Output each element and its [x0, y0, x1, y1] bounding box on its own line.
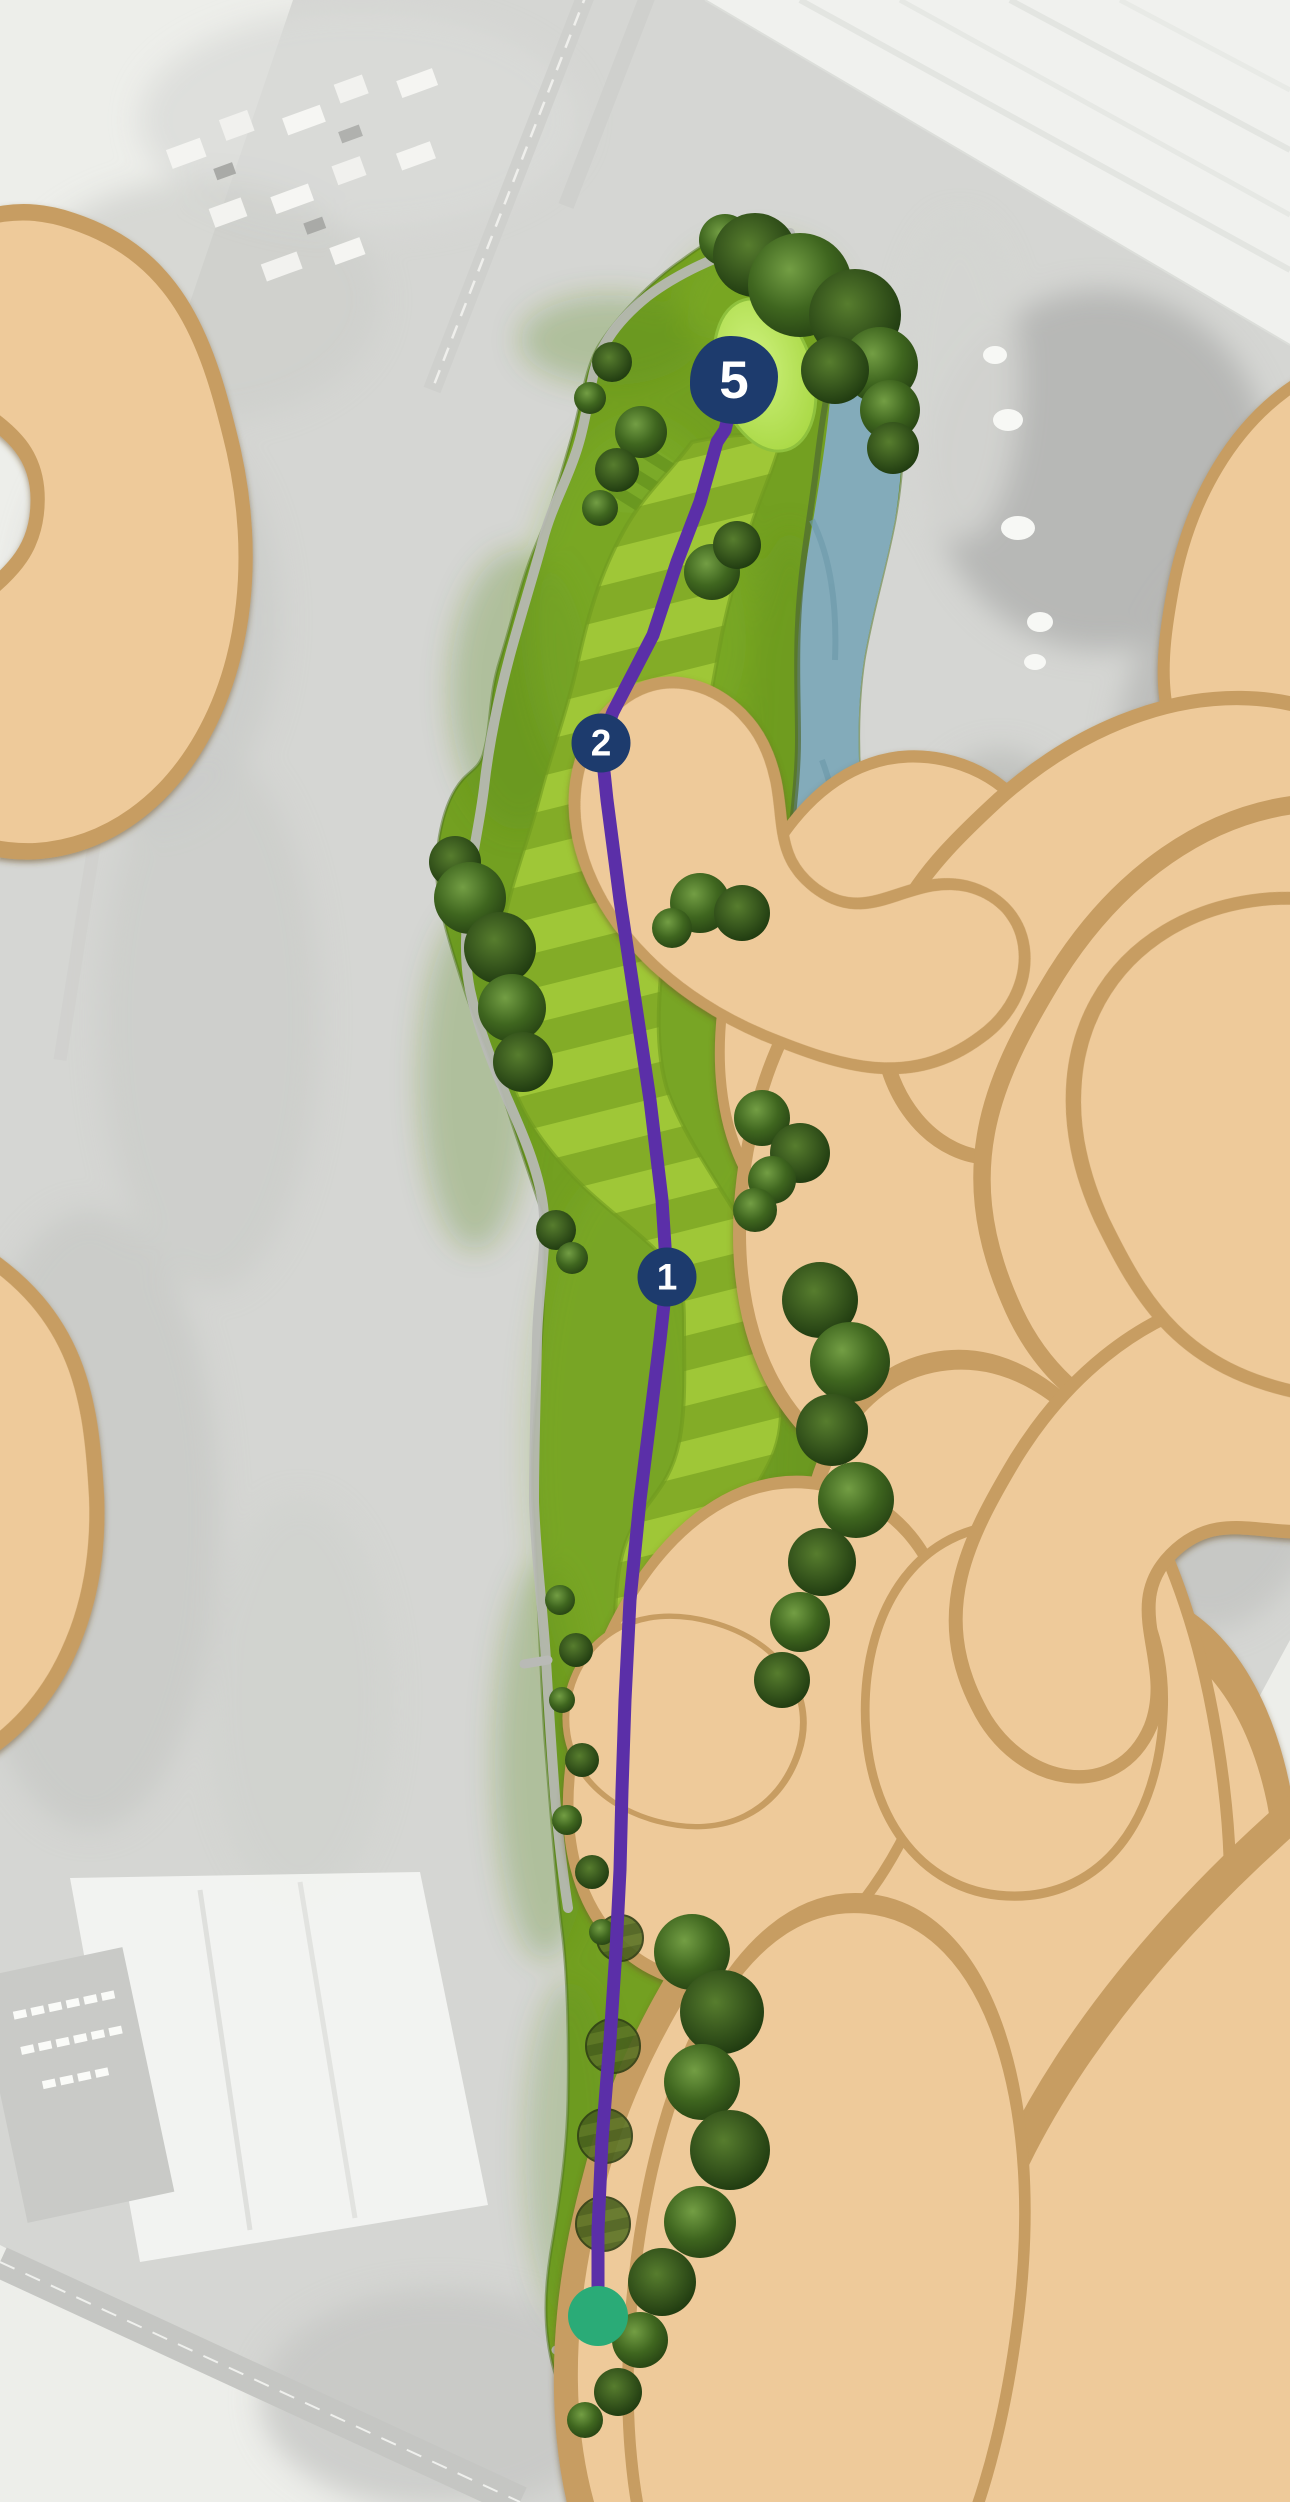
map-canvas: © 2025 Amap - GS(2023)4047号 — [0, 0, 1290, 2502]
waypoint-1-marker[interactable]: 1 — [638, 1248, 697, 1307]
waypoint-2-marker[interactable]: 2 — [572, 714, 631, 773]
tee-position-dot[interactable] — [568, 2286, 628, 2346]
hole-5-marker[interactable]: 5 — [690, 336, 778, 424]
golf-hole-map-view: © 2025 Amap - GS(2023)4047号 — [0, 0, 1290, 2502]
